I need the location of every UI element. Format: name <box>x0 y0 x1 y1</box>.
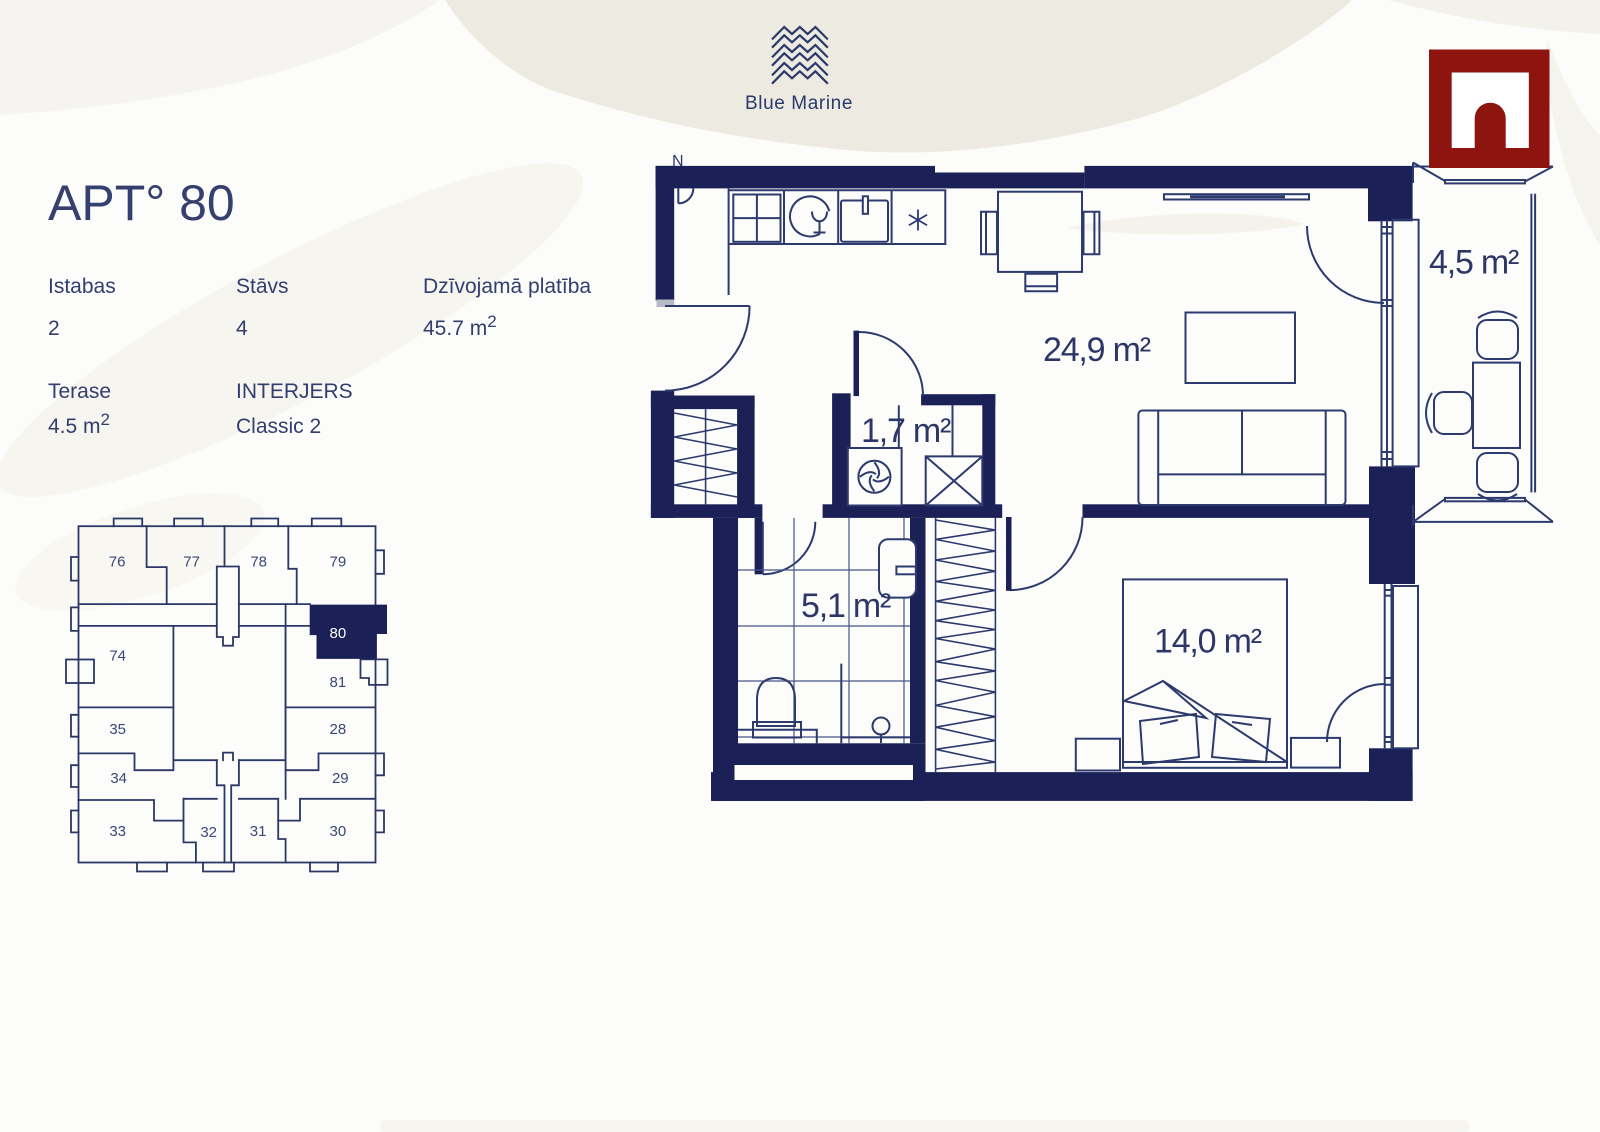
svg-text:Dzīvojamā platība: Dzīvojamā platība <box>423 275 591 298</box>
svg-text:5,1 m²: 5,1 m² <box>801 587 891 625</box>
svg-text:80: 80 <box>330 625 347 642</box>
svg-text:1,7 m²: 1,7 m² <box>861 412 951 450</box>
svg-text:74: 74 <box>109 648 126 665</box>
svg-text:81: 81 <box>330 674 347 691</box>
svg-text:34: 34 <box>110 770 127 787</box>
svg-text:29: 29 <box>332 770 349 787</box>
svg-text:4,5 m²: 4,5 m² <box>1429 244 1519 282</box>
svg-text:14,0 m²: 14,0 m² <box>1154 623 1262 661</box>
svg-text:30: 30 <box>330 823 347 840</box>
svg-text:78: 78 <box>250 553 267 570</box>
svg-text:Terase: Terase <box>48 380 111 403</box>
svg-text:33: 33 <box>109 823 126 840</box>
svg-text:24,9 m²: 24,9 m² <box>1043 331 1151 369</box>
svg-text:INTERJERS: INTERJERS <box>236 380 353 403</box>
svg-text:76: 76 <box>109 553 126 570</box>
svg-text:APT° 80: APT° 80 <box>48 175 235 231</box>
svg-text:31: 31 <box>250 823 267 840</box>
svg-text:79: 79 <box>330 553 347 570</box>
svg-text:77: 77 <box>183 553 200 570</box>
svg-text:45.7 m2: 45.7 m2 <box>423 312 497 340</box>
svg-text:28: 28 <box>330 721 347 738</box>
svg-text:4: 4 <box>236 317 248 340</box>
svg-text:35: 35 <box>109 721 126 738</box>
svg-text:Classic 2: Classic 2 <box>236 415 321 438</box>
svg-text:Istabas: Istabas <box>48 275 116 298</box>
svg-text:2: 2 <box>48 317 60 340</box>
svg-text:32: 32 <box>200 824 217 841</box>
svg-text:Blue Marine: Blue Marine <box>745 93 853 114</box>
svg-text:Stāvs: Stāvs <box>236 275 289 298</box>
